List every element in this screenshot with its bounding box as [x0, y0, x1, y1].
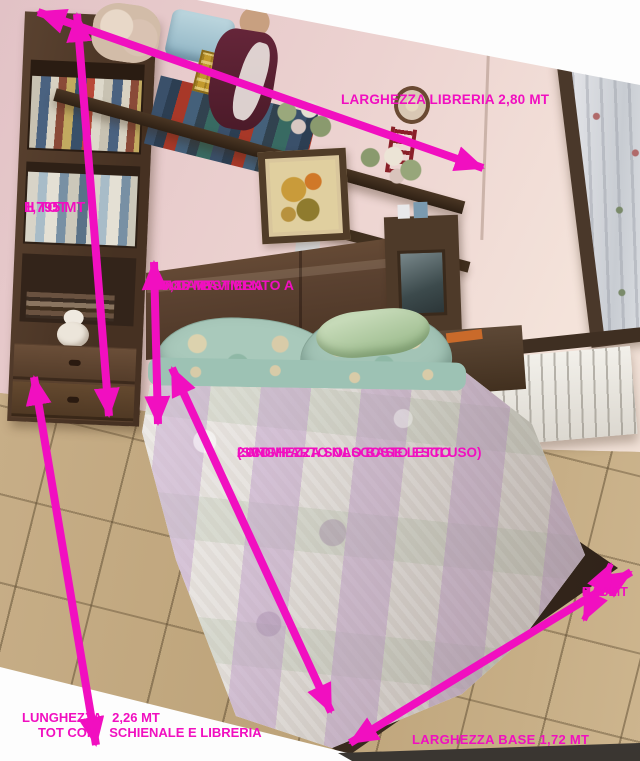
label-larghezza-base: LARGHEZZA BASE 1,72 MT — [412, 733, 589, 748]
label-h-tot-line2: 1,795 MT — [24, 200, 85, 216]
annotated-bedroom-photo: LARGHEZZA LIBRERIA 2,80 MT H TOT 1,795 M… — [0, 0, 640, 761]
label-h-base-line3: 0,41 MT — [582, 585, 628, 600]
label-lunghezza-base-line3: 2 MT — [237, 445, 268, 461]
label-lunghezza-tot-word3: SCHIENALE E LIBRERIA — [109, 725, 261, 740]
arrow-lunghezza-tot — [34, 377, 96, 745]
label-lunghezza-tot-word2: TOT CON — [38, 725, 96, 740]
label-h-testiera-line3: 0,85 MT — [162, 277, 213, 294]
label-lunghezza-tot-value: 2,26 MT — [112, 710, 160, 725]
label-lunghezza-tot-line1: LUNGHEZZA 2,26 MT — [22, 710, 262, 725]
label-lunghezza-base-line2: (SCOMPARTO NASCOSTO ESCLUSO) — [237, 445, 482, 461]
arrow-h-testiera — [154, 262, 158, 424]
label-lunghezza-tot-word: LUNGHEZZA — [22, 710, 102, 725]
label-lunghezza-tot: LUNGHEZZA 2,26 MT TOT CON SCHIENALE E LI… — [22, 710, 262, 740]
measurement-arrows — [0, 0, 640, 761]
arrow-lunghezza-base — [172, 368, 331, 712]
label-lunghezza-tot-line2: TOT CON SCHIENALE E LIBRERIA — [38, 725, 262, 740]
arrow-larghezza-libreria — [38, 12, 483, 168]
label-larghezza-libreria: LARGHEZZA LIBRERIA 2,80 MT — [341, 92, 549, 107]
